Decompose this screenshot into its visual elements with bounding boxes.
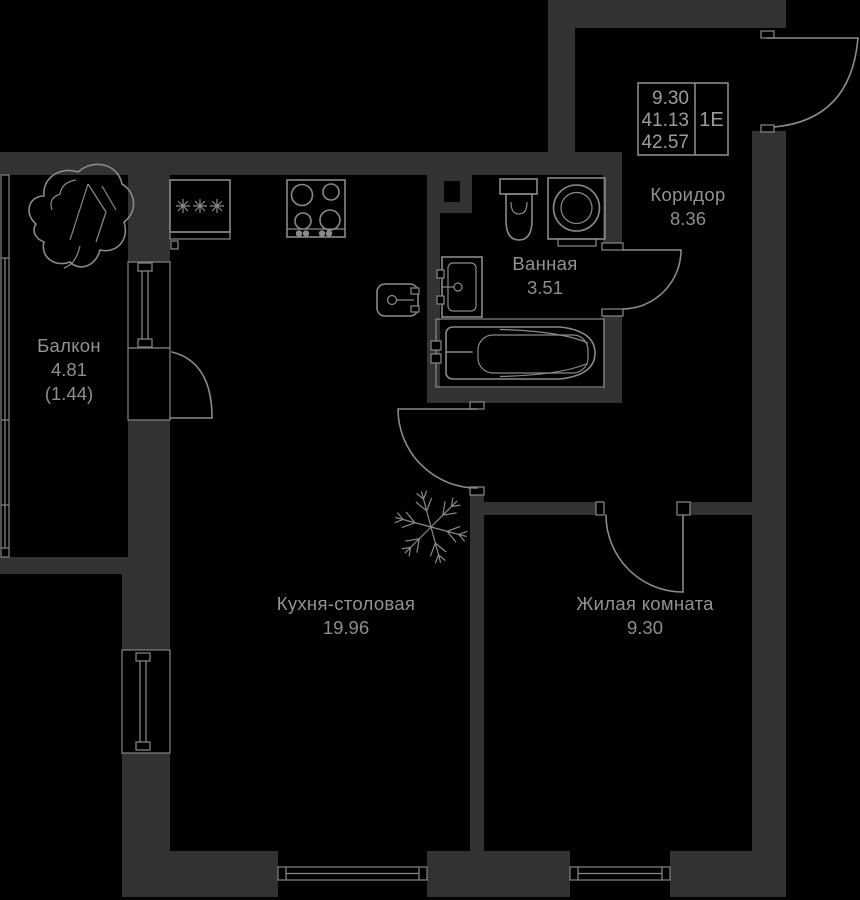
bathroom-door: [602, 243, 681, 316]
room-label-bathroom: Ванная 3.51: [512, 253, 577, 298]
stat-living-area: 9.30: [652, 88, 689, 109]
balcony-door: [128, 348, 212, 420]
kitchen-name: Кухня-столовая: [277, 593, 416, 614]
toilet: [500, 179, 537, 240]
stat-area-without-balcony: 41.13: [641, 110, 689, 131]
area-stats-box: 9.30 41.13 42.57 1Е: [638, 83, 728, 155]
balcony-name: Балкон: [37, 335, 101, 356]
living-bottom-window: [570, 867, 670, 880]
corridor-name: Коридор: [650, 184, 725, 205]
balcony-divider-window: [128, 262, 170, 348]
living-area: 9.30: [627, 617, 663, 638]
floor-plan: 9.30 41.13 42.57 1Е Коридор 8.36 Ванная …: [0, 0, 860, 900]
kitchen-door: [398, 402, 484, 495]
kitchen-basin: [377, 284, 419, 316]
bathtub: [431, 319, 604, 387]
kitchen-area: 19.96: [323, 617, 369, 638]
kitchen-bottom-window: [278, 867, 427, 880]
room-label-living: Жилая комната 9.30: [576, 593, 714, 638]
entrance-door: [761, 31, 858, 132]
snowflake-icon: [395, 491, 468, 564]
balcony-decor-sketch: [29, 164, 134, 268]
balcony-area: 4.81: [51, 359, 87, 380]
room-label-kitchen: Кухня-столовая 19.96: [277, 593, 416, 638]
kitchen-left-window: [122, 650, 170, 753]
living-room-door: [596, 502, 690, 592]
balcony-area-coeff: (1.44): [45, 383, 93, 404]
stat-total-area: 42.57: [641, 132, 689, 153]
bathroom-area: 3.51: [527, 277, 563, 298]
fridge-unit: [170, 180, 230, 249]
floor-plan-svg: 9.30 41.13 42.57 1Е Коридор 8.36 Ванная …: [0, 0, 860, 900]
stove: [287, 180, 345, 237]
room-label-corridor: Коридор 8.36: [650, 184, 725, 229]
corridor-area: 8.36: [670, 208, 706, 229]
unit-type-label: 1Е: [699, 109, 723, 131]
bathroom-name: Ванная: [512, 253, 577, 274]
freezer-stars-icon: [176, 199, 224, 213]
washing-machine: [548, 178, 605, 246]
bathroom-sink: [437, 257, 482, 317]
balcony-outer-window: [1, 175, 9, 557]
living-name: Жилая комната: [576, 593, 714, 614]
room-label-balcony: Балкон 4.81 (1.44): [37, 335, 101, 404]
